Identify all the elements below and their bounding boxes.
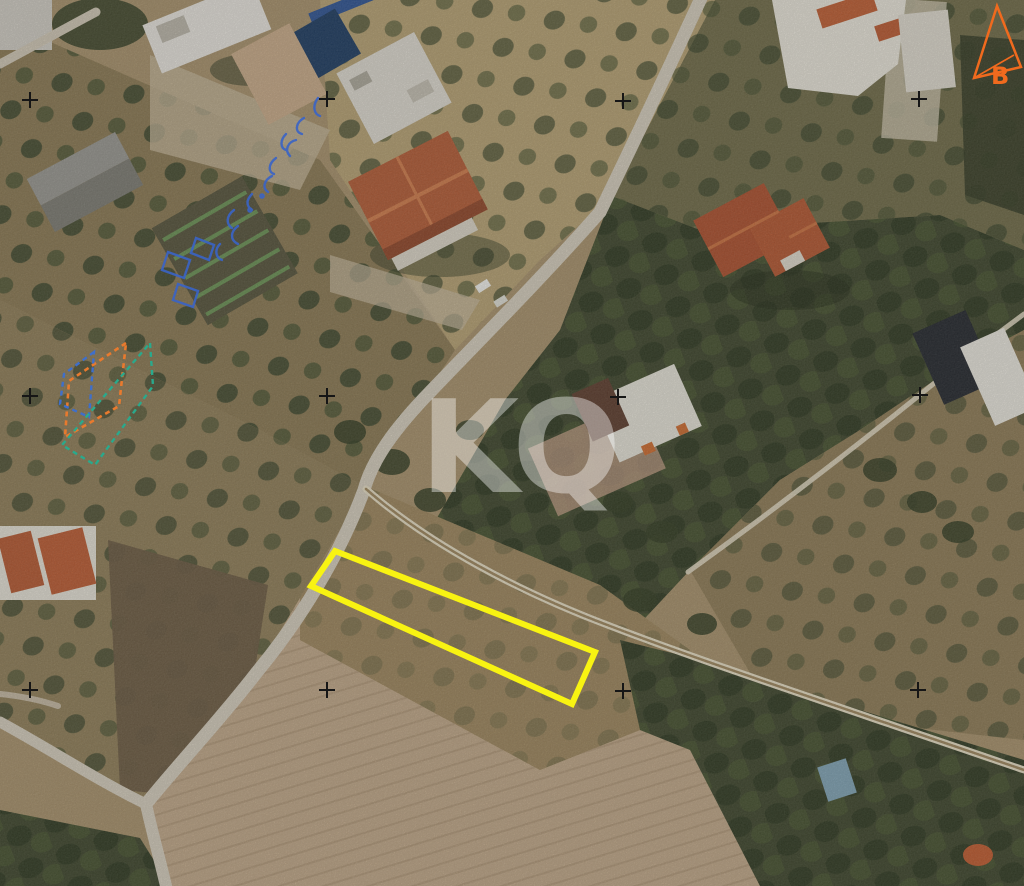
aerial-map-image: KQ B — [0, 0, 1024, 886]
north-label: B — [991, 62, 1009, 90]
watermark-text: KQ — [420, 374, 615, 523]
